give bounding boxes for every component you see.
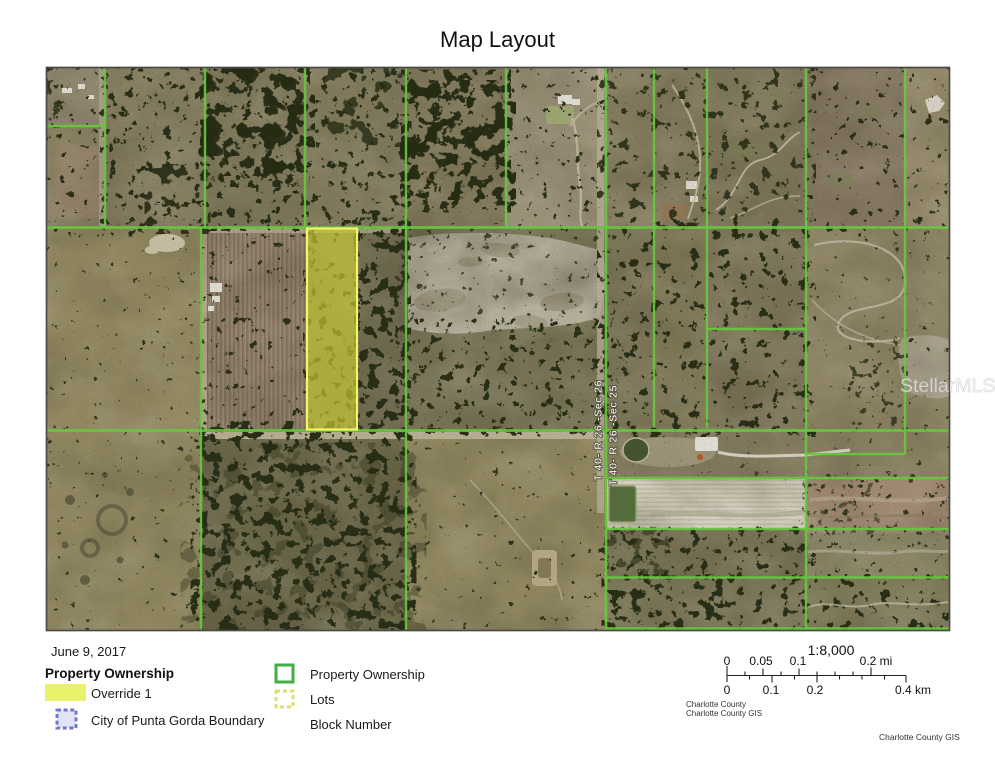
svg-text:0: 0	[724, 683, 731, 697]
svg-text:0.2: 0.2	[807, 683, 824, 697]
svg-text:1:8,000: 1:8,000	[808, 642, 855, 658]
svg-text:Property Ownership: Property Ownership	[310, 667, 425, 682]
svg-text:Block Number: Block Number	[310, 717, 392, 732]
svg-text:City of Punta Gorda Boundary: City of Punta Gorda Boundary	[91, 713, 265, 728]
svg-text:0.4 km: 0.4 km	[895, 683, 931, 697]
svg-text:0: 0	[724, 654, 731, 668]
svg-text:Property Ownership: Property Ownership	[45, 666, 174, 681]
svg-text:T 40- R 26 -Sec 26: T 40- R 26 -Sec 26	[593, 380, 605, 481]
svg-text:0.05: 0.05	[749, 654, 773, 668]
svg-text:StellarMLS: StellarMLS	[900, 375, 995, 397]
svg-text:Charlotte County: Charlotte County	[686, 700, 746, 709]
svg-text:Override 1: Override 1	[91, 686, 152, 701]
svg-text:0.1: 0.1	[790, 654, 807, 668]
svg-text:0.1: 0.1	[763, 683, 780, 697]
svg-text:0.2 mi: 0.2 mi	[860, 654, 893, 668]
svg-text:June 9, 2017: June 9, 2017	[51, 644, 126, 659]
svg-text:Charlotte County GIS: Charlotte County GIS	[879, 732, 960, 742]
svg-text:T 40- R 26 -Sec 25: T 40- R 26 -Sec 25	[608, 385, 620, 486]
svg-text:Lots: Lots	[310, 692, 335, 707]
svg-text:Charlotte County GIS: Charlotte County GIS	[686, 709, 762, 718]
